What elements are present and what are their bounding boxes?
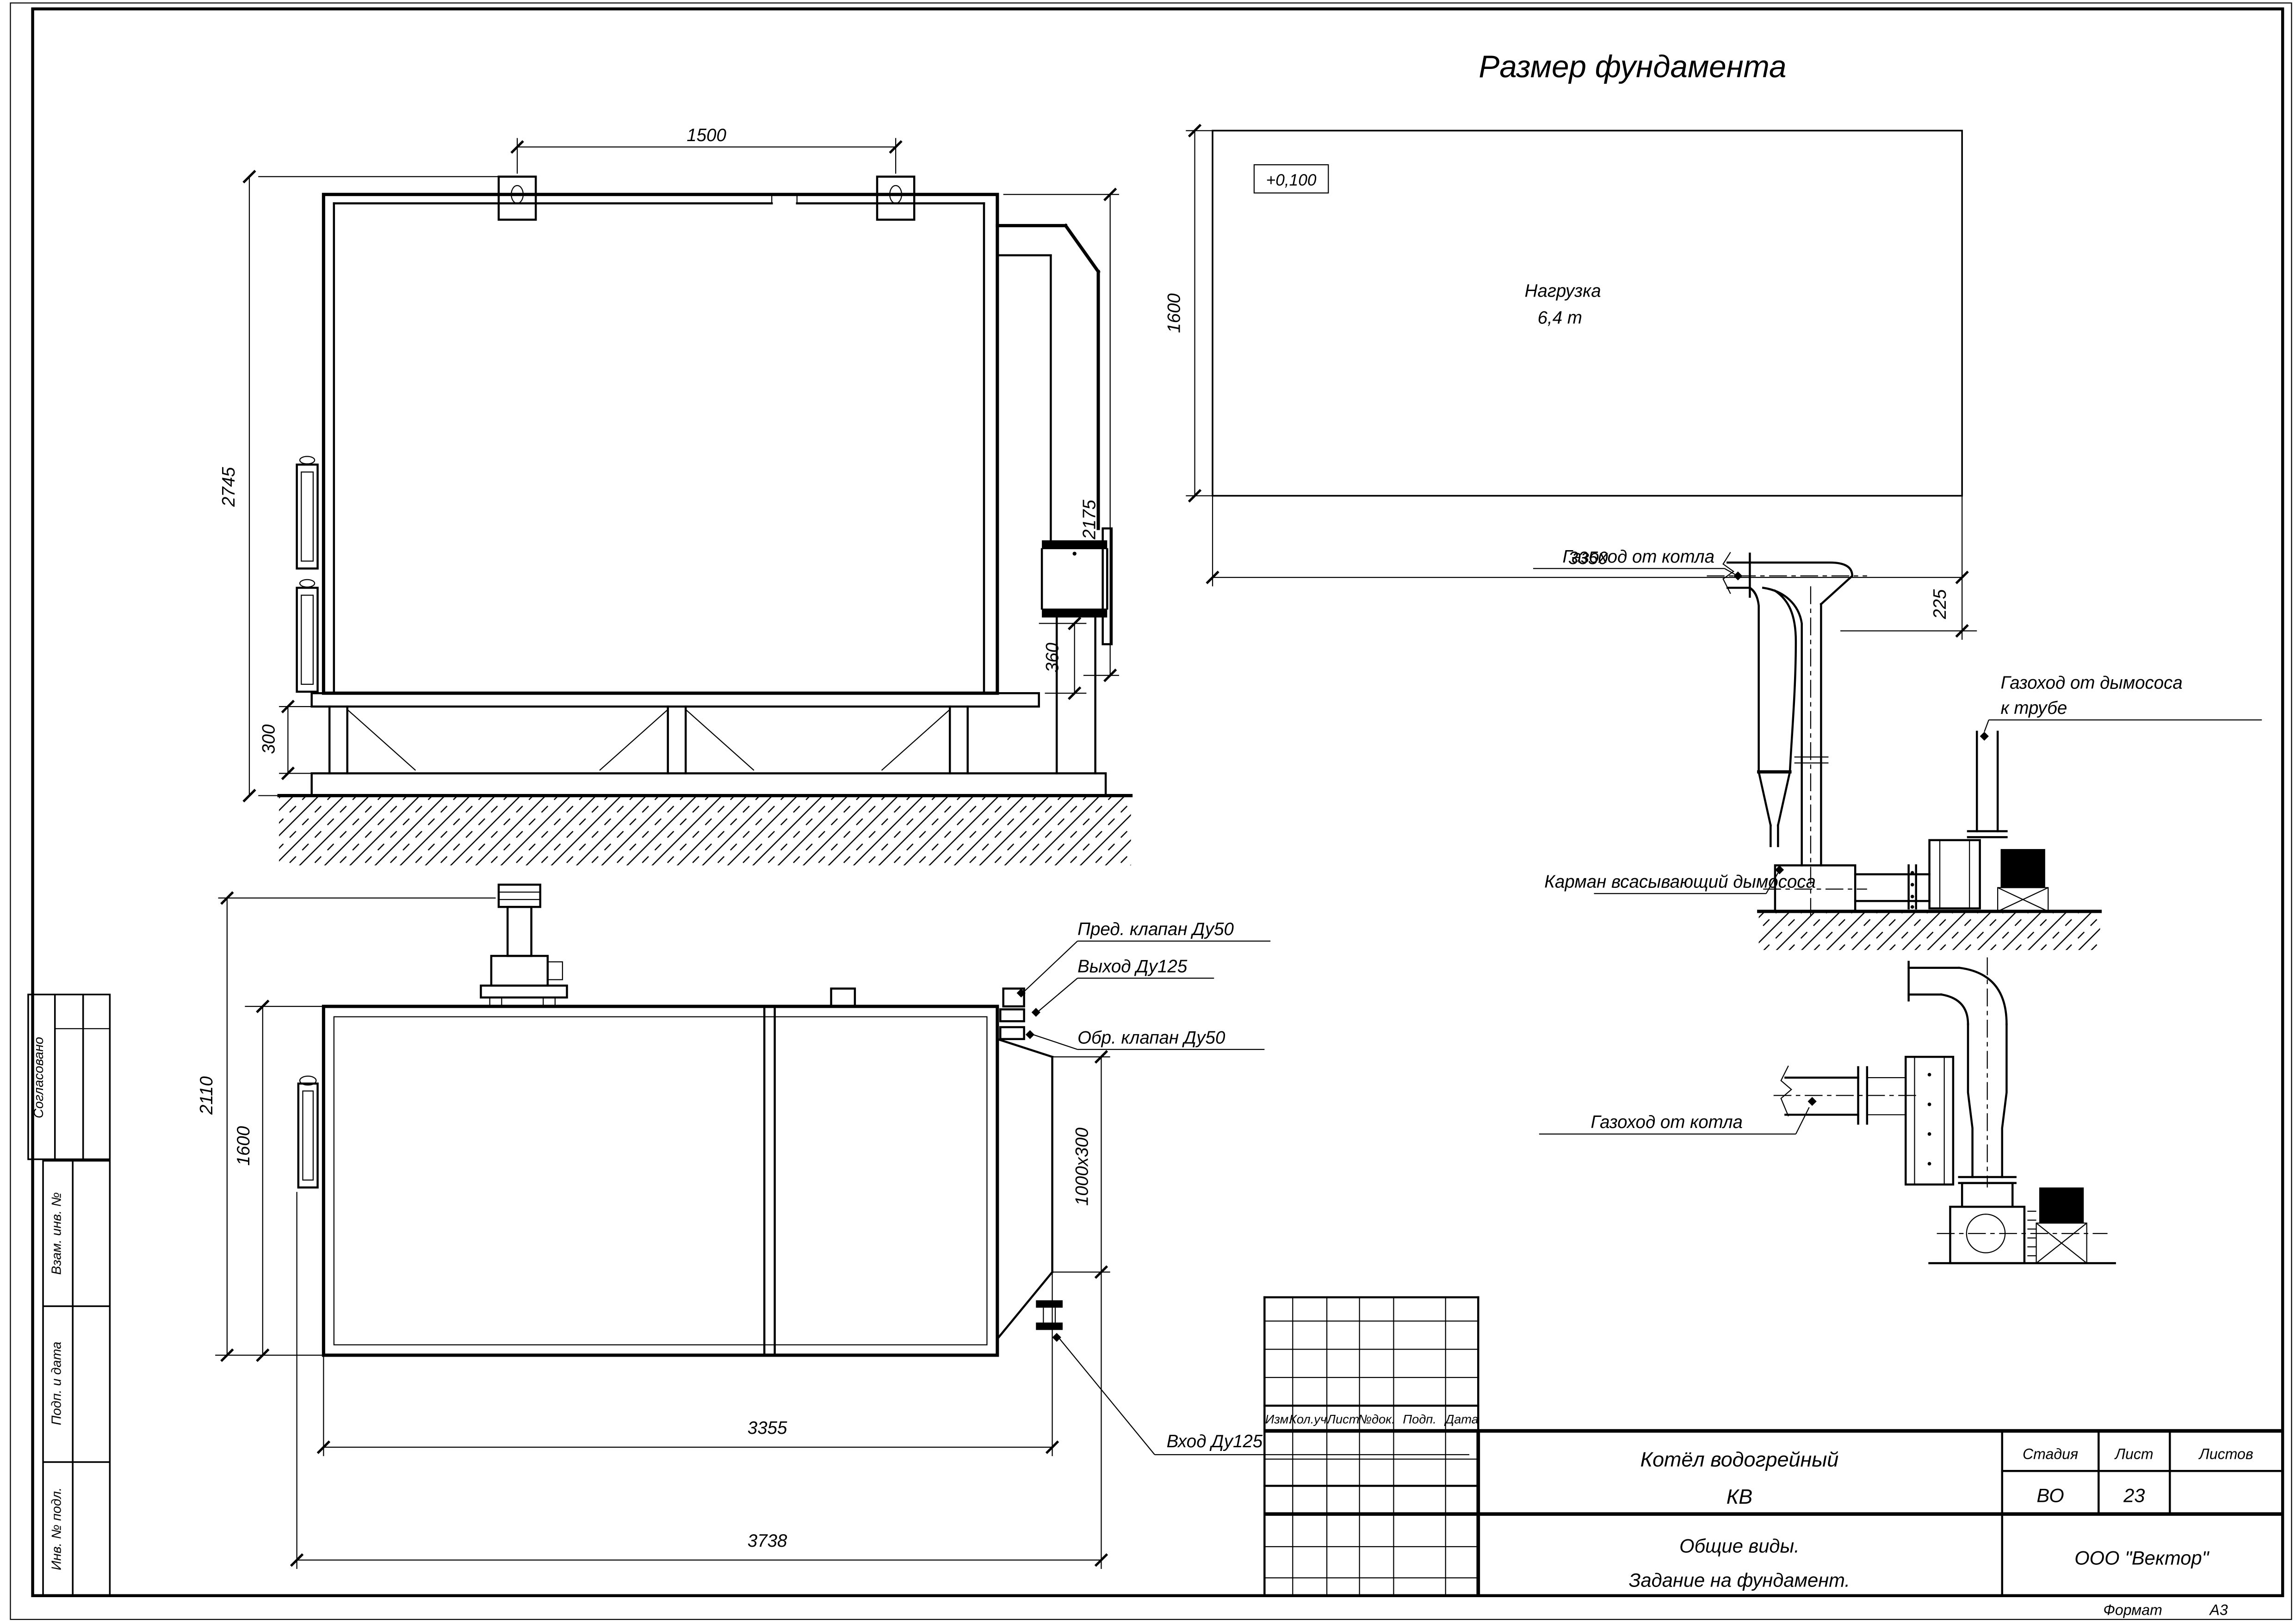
sheets-label: Листов — [2198, 1446, 2253, 1463]
label-check-valve: Обр. клапан Ду50 — [1077, 1028, 1225, 1048]
dim-3738: 3738 — [748, 1531, 787, 1551]
stamp-inv: Инв. № подл. — [50, 1488, 64, 1570]
outlet-duct-plan — [997, 1039, 1052, 1339]
label-flue-to-stack-1: Газоход от дымососа — [2001, 673, 2183, 693]
side-flange-lower — [297, 580, 318, 692]
col-ndok: №док. — [1358, 1412, 1395, 1426]
title-block: Котёл водогрейный КВ Стадия Лист Листов … — [1264, 1297, 2283, 1596]
smoke-exhauster-lower — [1930, 1183, 2115, 1263]
side-flange-upper — [297, 457, 318, 569]
label-inlet: Вход Ду125 — [1167, 1432, 1263, 1451]
label-suction-pocket: Карман всасывающий дымососа — [1544, 872, 1816, 892]
label-flue-to-stack-2: к трубе — [2001, 698, 2067, 718]
ground-hatch-upper — [1759, 911, 2100, 950]
load-line1: Нагрузка — [1525, 281, 1601, 301]
col-izm: Изм. — [1265, 1412, 1292, 1426]
format-strip: Формат А3 — [2103, 1601, 2228, 1618]
top-port — [831, 989, 855, 1006]
stamp-vzam: Взам. инв. № — [50, 1192, 64, 1275]
doc-name-line1: Общие виды. — [1679, 1535, 1800, 1557]
boiler-top-view: Пред. клапан Ду50 Выход Ду125 Обр. клапа… — [197, 885, 1469, 1569]
stamp-podp: Подп. и дата — [50, 1342, 64, 1426]
top-view-left-flange — [298, 1076, 318, 1188]
dim-360: 360 — [1042, 643, 1062, 673]
sheet-value: 23 — [2123, 1485, 2145, 1506]
lifting-lug-right — [877, 177, 914, 220]
product-name-line1: Котёл водогрейный — [1640, 1448, 1839, 1471]
dim-foundation-1600: 1600 — [1164, 293, 1184, 333]
stamp-approved: Согласовано — [31, 1037, 46, 1118]
flue-lower-diagram: Газоход от котла — [1539, 957, 2115, 1263]
flue-upper-diagram: Газоход от котла Карман всасывающий дымо… — [1533, 547, 2262, 950]
col-podp: Подп. — [1403, 1412, 1436, 1426]
dim-300: 300 — [259, 724, 279, 754]
dim-top-1600: 1600 — [234, 1126, 254, 1165]
top-view-fan — [481, 885, 567, 1006]
dim-225: 225 — [1930, 589, 1950, 620]
format-label: Формат — [2103, 1601, 2162, 1618]
load-line2: 6,4 т — [1538, 308, 1582, 328]
stage-value: ВО — [2036, 1485, 2064, 1506]
sheet-label: Лист — [2114, 1446, 2154, 1463]
dim-2175: 2175 — [1080, 499, 1100, 539]
label-outlet: Выход Ду125 — [1077, 956, 1188, 976]
label-flue-from-boiler-1: Газоход от котла — [1563, 547, 1714, 567]
left-stamp: Согласовано Взам. инв. № Подп. и дата Ин… — [28, 994, 110, 1595]
col-koluch: Кол.уч. — [1289, 1412, 1331, 1426]
label-flue-from-boiler-2: Газоход от котла — [1591, 1112, 1743, 1132]
ground-hatch-side — [279, 796, 1131, 866]
label-safety-valve: Пред. клапан Ду50 — [1077, 919, 1234, 939]
cyclone — [1750, 588, 1795, 846]
support-frame — [312, 693, 1106, 795]
dim-2110: 2110 — [197, 1076, 217, 1115]
format-value: А3 — [2209, 1601, 2228, 1618]
stage-label: Стадия — [2023, 1446, 2078, 1463]
elevation-value: +0,100 — [1266, 171, 1317, 189]
elbow-and-pipe-lower — [1909, 962, 2016, 1183]
lifting-lug-left — [499, 177, 536, 220]
organization: ООО "Вектор" — [2074, 1547, 2209, 1568]
drawing-sheet: Согласовано Взам. инв. № Подп. и дата Ин… — [0, 0, 2296, 1624]
product-name-line2: КВ — [1727, 1485, 1752, 1508]
dim-3355: 3355 — [748, 1418, 787, 1438]
inlet-nozzle — [1036, 1300, 1063, 1330]
col-list: Лист — [1326, 1412, 1359, 1426]
dim-2745: 2745 — [219, 467, 239, 507]
dim-1500: 1500 — [687, 125, 726, 145]
page-title: Размер фундамента — [1479, 50, 1786, 84]
boiler-side-view: 1500 2745 2175 360 300 — [219, 125, 1131, 866]
doc-name-line2: Задание на фундамент. — [1629, 1569, 1850, 1591]
col-data: Дата — [1444, 1412, 1479, 1426]
smoke-exhauster-upper — [1855, 732, 2048, 911]
dim-duct-1000x300: 1000x300 — [1072, 1127, 1092, 1206]
revision-table: Изм. Кол.уч. Лист №док. Подп. Дата — [1264, 1297, 1479, 1596]
